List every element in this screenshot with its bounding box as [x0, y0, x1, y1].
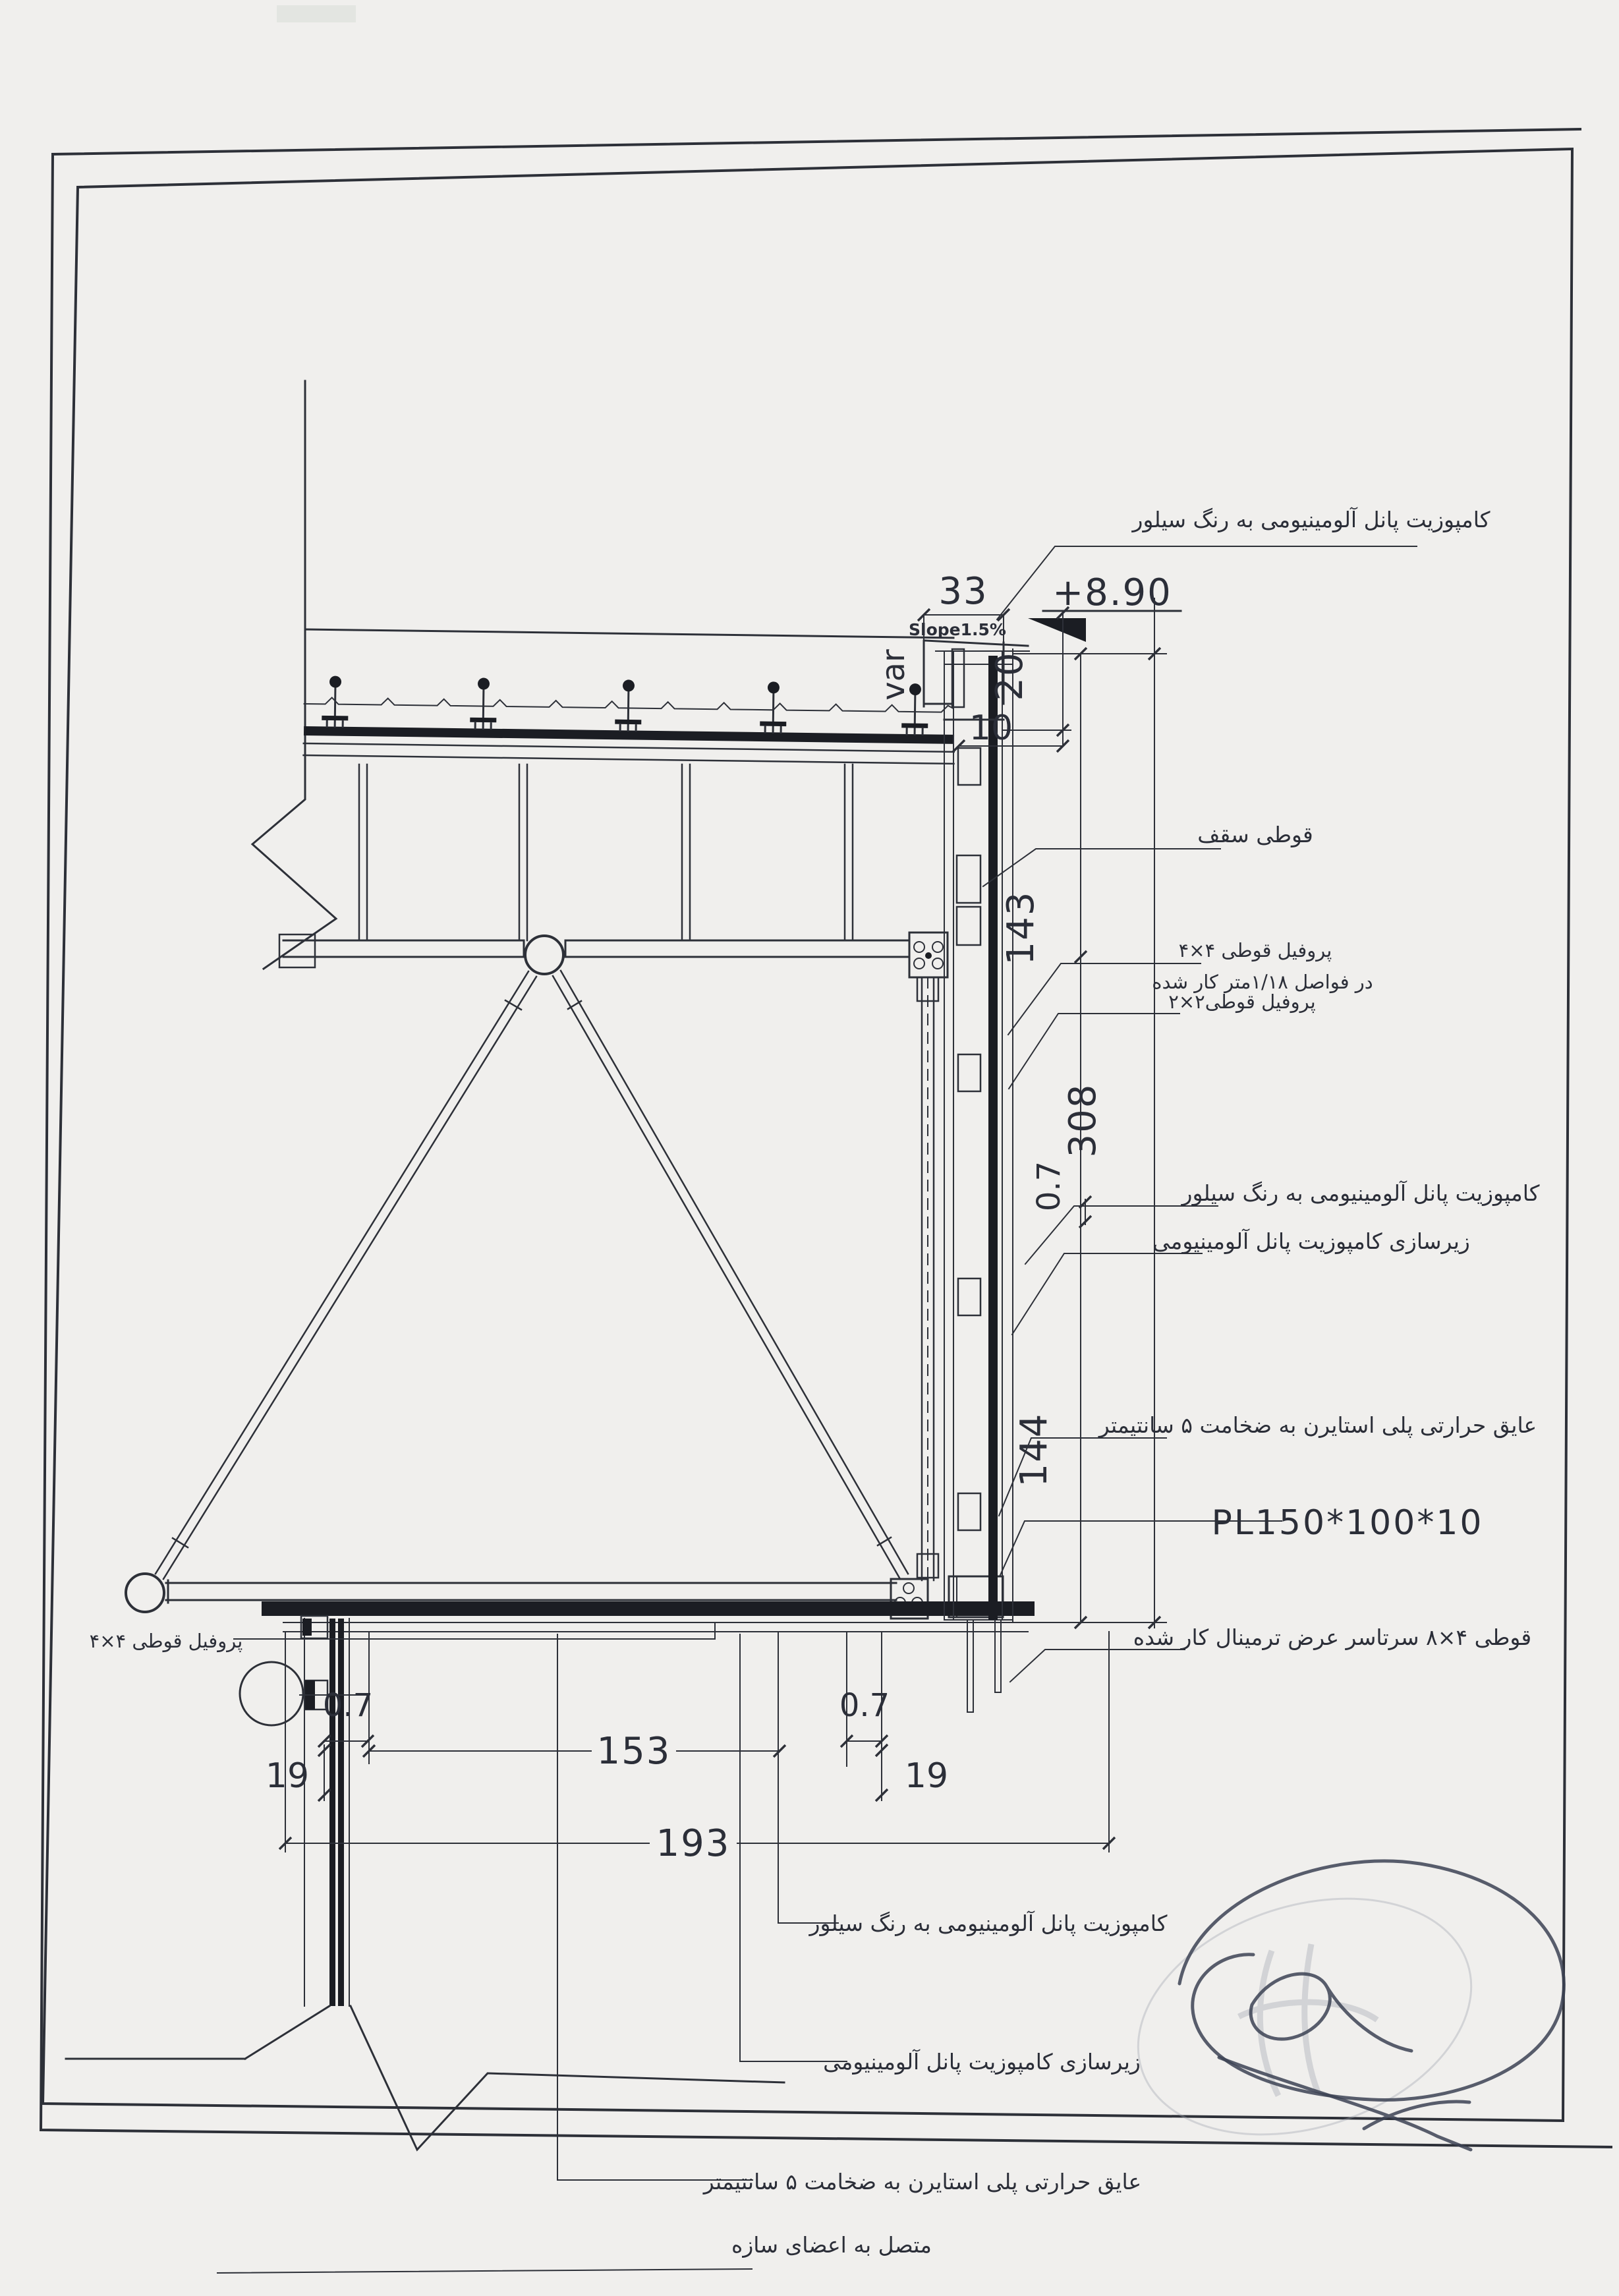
- leader-box-4x8: [1010, 1650, 1185, 1682]
- right-edge-closure: [967, 1620, 1001, 1712]
- dim-edge-drop-left: 19: [266, 1756, 309, 1796]
- callout-bottom-substructure: زیرسازی کامپوزیت پانل آلومینیومی: [823, 2049, 1141, 2075]
- stud-head: [478, 677, 490, 689]
- node-pin: [925, 952, 932, 959]
- callout-profile-4x4-line1: پروفیل قوطی ۴×۴: [1179, 939, 1332, 962]
- wall-break-line: [252, 381, 336, 969]
- stud-head: [768, 681, 780, 693]
- callout-profile-4x4-line2: در فواصل ۱/۱۸متر کار شده: [1152, 971, 1373, 993]
- border-inner: [43, 149, 1572, 2121]
- dim-soffit-clear: 153: [597, 1730, 671, 1773]
- leader-roof-box: [983, 849, 1220, 886]
- mullion-break-line: [66, 2006, 784, 2150]
- truss-node-bottom-right: [891, 1576, 1003, 1712]
- facade-detail-drawing: +8.90 33 Slope1.5% var 20 10 143 308 0.7…: [0, 0, 1619, 2296]
- mullion-below-canopy: [66, 1616, 784, 2150]
- callout-bottom-insulation-line2: متصل به اعضای سازه: [731, 2232, 932, 2258]
- stud-head: [623, 679, 635, 691]
- leader-bottom-substructure: [740, 1634, 847, 2061]
- soffit-panel-dark-band: [262, 1601, 1035, 1616]
- shear-stud-stems: [327, 688, 923, 734]
- roof-box-upper: [957, 855, 980, 903]
- callout-bottom-panel: کامپوزیت پانل آلومینیومی به رنگ سیلور: [809, 1910, 1168, 1936]
- ball-joint-apex: [525, 936, 563, 974]
- shear-stud-bases: [322, 718, 928, 726]
- signature-tail: [1219, 2057, 1471, 2150]
- level-marker: +8.90: [1028, 571, 1181, 642]
- dim-overall-height: 308: [1062, 1083, 1104, 1158]
- level-triangle: [1028, 618, 1086, 642]
- soffit-underside-lines: [283, 1622, 1074, 1632]
- dim-edge-drop-right: 19: [905, 1756, 948, 1796]
- detail-reference-circle: [240, 1662, 303, 1725]
- signature-inner: [1251, 1974, 1411, 2051]
- truss-top-chord: [283, 940, 909, 957]
- roof-top-line: [305, 629, 953, 638]
- dimension-lines: [285, 598, 1154, 1843]
- furring-profile-2x2: [958, 1493, 980, 1530]
- mullion-head-dark: [302, 1619, 312, 1636]
- truss-diagonal-right: [553, 971, 908, 1579]
- dim-panel-thickness-right: 0.7: [839, 1687, 890, 1724]
- callout-insulation: عایق حرارتی پلی استایرن به ضخامت ۵ سانتی…: [1098, 1412, 1537, 1439]
- dim-soffit-overall: 193: [656, 1822, 731, 1865]
- leader-bottom-panel: [778, 1632, 838, 1923]
- dim-top-width: 33: [938, 570, 988, 613]
- node-bolt: [914, 958, 924, 969]
- node-bolt: [914, 942, 924, 952]
- extension-lines: [285, 615, 1166, 1852]
- callout-plate: PL150*100*10: [1212, 1503, 1484, 1543]
- stamp-and-signature: [1108, 1858, 1564, 2175]
- roof-box-lower: [957, 907, 980, 945]
- composite-panel-dark-band: [988, 656, 998, 1620]
- dim-panel-thickness-mid: 0.7: [1031, 1161, 1067, 1211]
- dim-lower-segment: 144: [1013, 1413, 1056, 1487]
- node-bolt: [932, 958, 943, 969]
- roof-deck: [304, 629, 955, 764]
- callout-bottom-insulation-line1: عایق حرارتی پلی استایرن به ضخامت ۵ سانتی…: [702, 2169, 1141, 2195]
- dim-upper-segment: 143: [1000, 891, 1042, 965]
- furring-profile-2x2: [958, 1278, 980, 1315]
- mullion-dark-line: [329, 1619, 335, 2006]
- dim-var: var: [875, 649, 912, 701]
- scan-smudge: [277, 5, 356, 22]
- canopy-bottom-chord: [166, 1580, 896, 1603]
- callout-box-4x8: قوطی ۴×۸ سرتاسر عرض ترمینال کار شده: [1133, 1624, 1531, 1651]
- scanned-drawing-page: +8.90 33 Slope1.5% var 20 10 143 308 0.7…: [0, 0, 1619, 2296]
- callout-substructure: زیرسازی کامپوزیت پانل آلومینیومی: [1152, 1228, 1470, 1254]
- dim-panel-thickness-left: 0.7: [323, 1687, 373, 1724]
- dim-cap-width: 10: [969, 708, 1013, 748]
- truss-diagonal-left: [156, 971, 536, 1579]
- dim-parapet-height: 20: [988, 651, 1031, 701]
- callout-profile-2x2: پروفیل قوطی۲×۲: [1168, 990, 1315, 1014]
- callout-left-profile-4x4: پروفیل قوطی ۴×۴: [90, 1630, 243, 1653]
- leader-substructure: [1012, 1253, 1202, 1335]
- furring-profile-2x2: [958, 1054, 980, 1091]
- stud-head: [329, 675, 341, 687]
- ball-joint-left: [126, 1574, 164, 1612]
- callout-top-panel: کامپوزیت پانل آلومینیومی به رنگ سیلور: [1131, 507, 1491, 532]
- node-bolt: [903, 1583, 914, 1593]
- furring-profile-2x2: [958, 748, 980, 785]
- border-outer: [41, 129, 1611, 2147]
- roof-posts: [359, 764, 853, 940]
- callout-mid-panel: کامپوزیت پانل آلومینیومی به رنگ سیلور: [1181, 1180, 1540, 1206]
- roof-beam-flange-lines: [304, 743, 954, 764]
- callout-roof-box: قوطی سقف: [1197, 822, 1313, 847]
- dimension-ticks: [279, 607, 1160, 1849]
- slope-label: Slope1.5%: [909, 620, 1006, 639]
- node-bolt: [932, 942, 943, 952]
- mullion-dark-line: [338, 1619, 344, 2006]
- truss-node-top-right: [909, 933, 948, 977]
